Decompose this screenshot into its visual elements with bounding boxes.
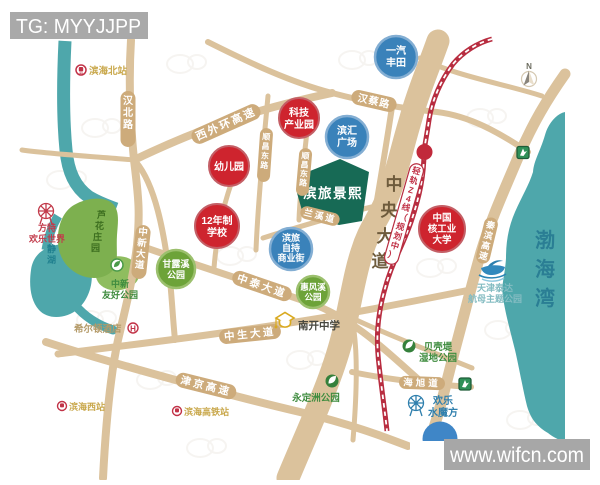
svg-text:汉北路: 汉北路 xyxy=(123,94,134,131)
svg-text:www.wifcn.com: www.wifcn.com xyxy=(449,444,584,467)
svg-text:南开中学: 南开中学 xyxy=(298,319,340,332)
svg-text:H: H xyxy=(130,325,136,334)
svg-text:幼儿园: 幼儿园 xyxy=(214,160,244,173)
svg-text:海旭道: 海旭道 xyxy=(403,376,441,389)
svg-text:滨海西站: 滨海西站 xyxy=(69,401,105,412)
svg-text:永定洲公园: 永定洲公园 xyxy=(291,392,340,404)
svg-text:滨汇广场: 滨汇广场 xyxy=(337,124,357,149)
svg-text:滨旅景熙: 滨旅景熙 xyxy=(303,185,363,201)
svg-text:渤海湾: 渤海湾 xyxy=(535,228,555,310)
svg-text:N: N xyxy=(526,62,532,71)
svg-text:滨海北站: 滨海北站 xyxy=(89,65,128,77)
svg-text:TG: MYYJJPP: TG: MYYJJPP xyxy=(16,16,141,38)
svg-text:一汽丰田: 一汽丰田 xyxy=(386,44,406,69)
svg-text:贝壳堤湿地公园: 贝壳堤湿地公园 xyxy=(419,341,457,364)
svg-text:希尔顿酒店: 希尔顿酒店 xyxy=(74,323,122,335)
svg-text:滨海高铁站: 滨海高铁站 xyxy=(184,406,229,417)
